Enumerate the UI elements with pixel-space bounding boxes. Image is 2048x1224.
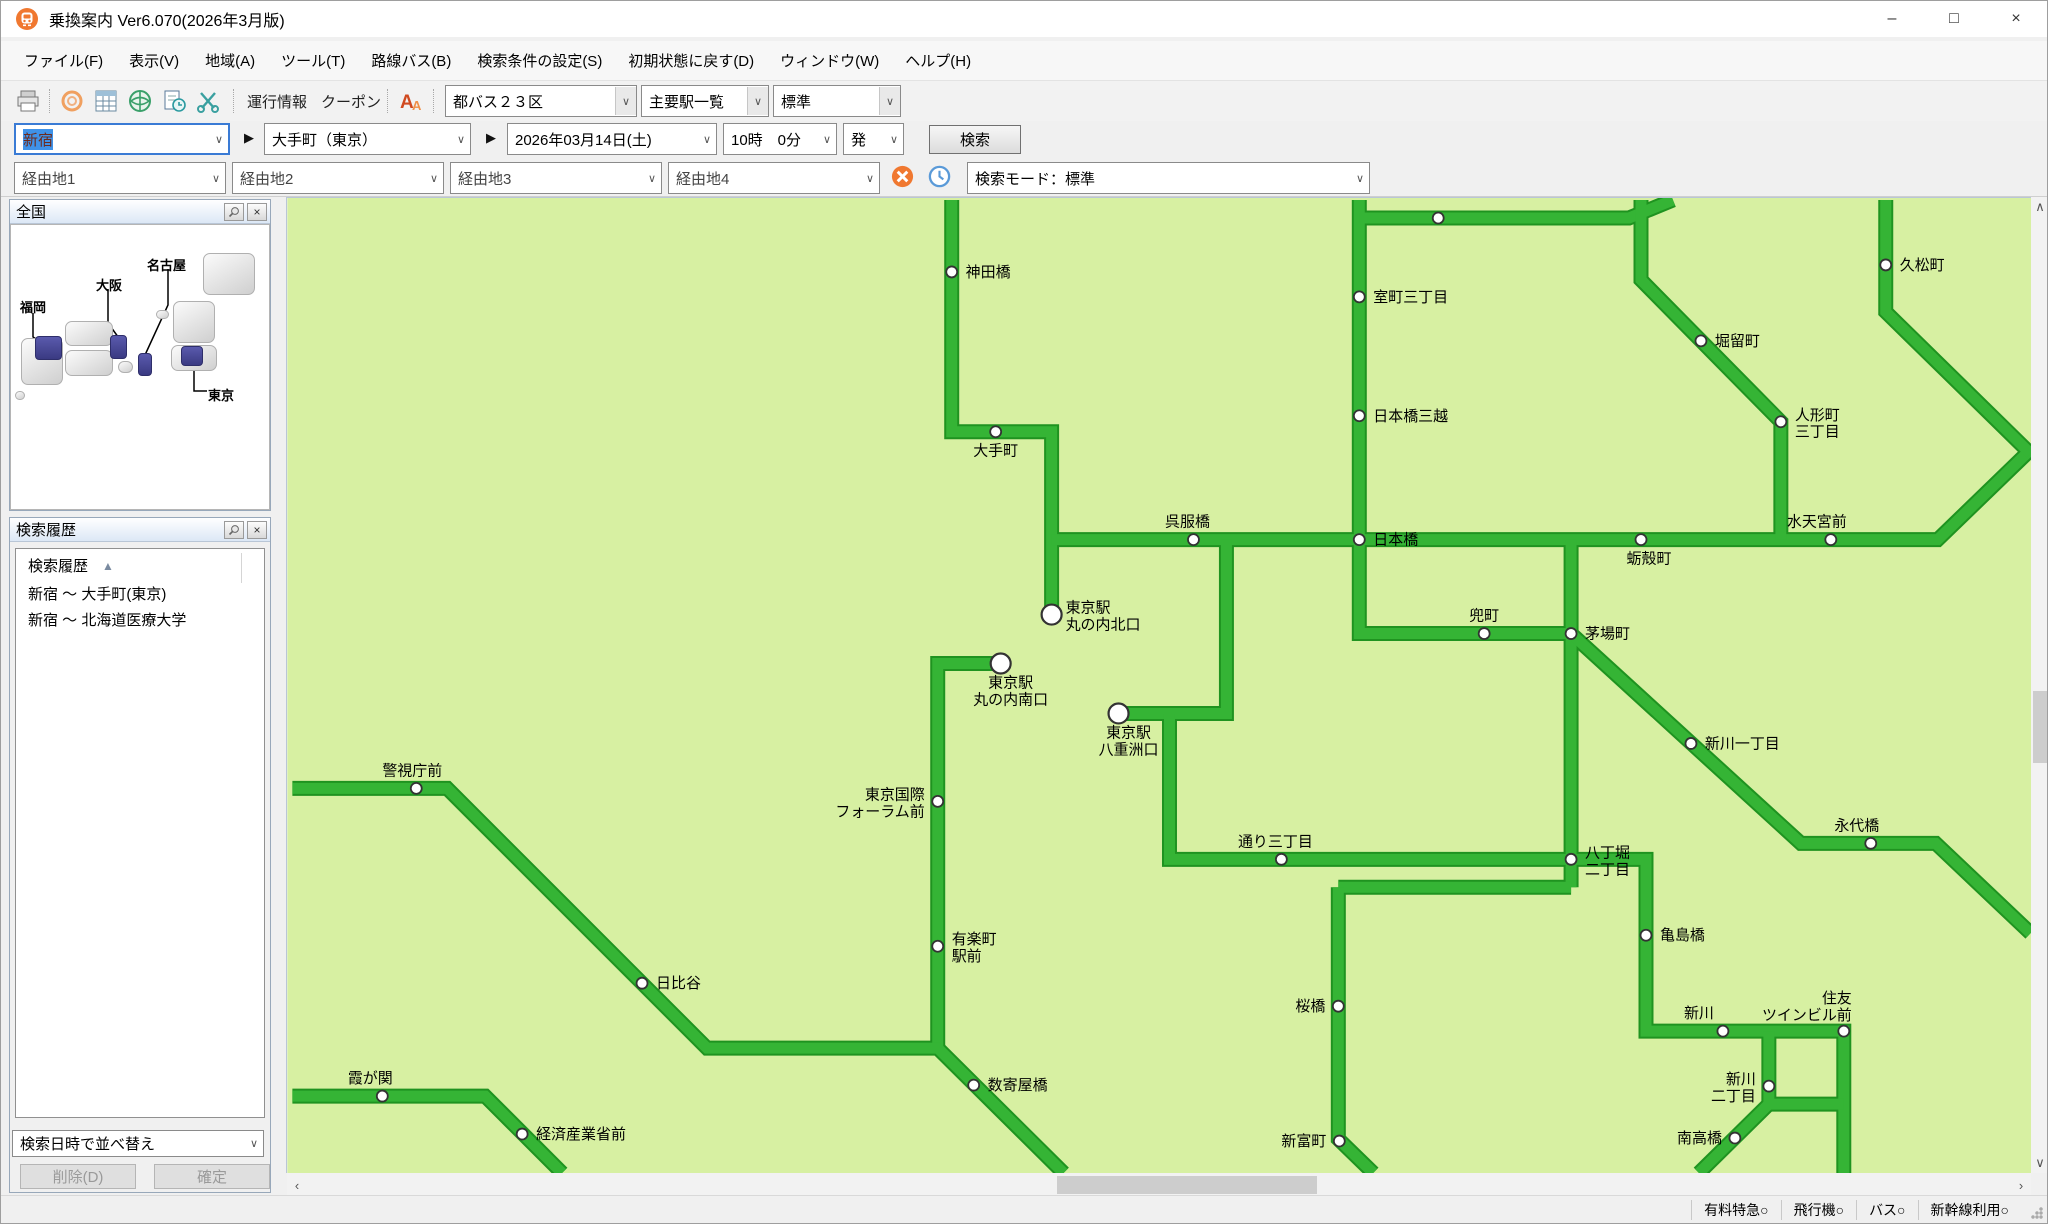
departure-station-input[interactable]: 新宿 ∨ (14, 123, 230, 155)
station-label-12: 丸の内北口 (1066, 617, 1141, 634)
station-dot-27[interactable] (1838, 1026, 1849, 1037)
close-icon[interactable]: × (247, 203, 267, 221)
station-dot-28[interactable] (1717, 1026, 1728, 1037)
station-dot-29[interactable] (377, 1091, 388, 1102)
scissors-icon[interactable] (195, 88, 221, 114)
station-label-10: 日本橋 (1373, 532, 1418, 549)
history-column-label: 検索履歴 (28, 555, 88, 576)
station-label-24: 日比谷 (656, 975, 701, 992)
menu-item-1[interactable]: 表示(V) (116, 44, 192, 77)
clear-via-icon[interactable] (890, 164, 915, 189)
via-placeholder: 経由地2 (240, 168, 293, 189)
station-label-32: 経済産業省前 (536, 1126, 626, 1143)
scroll-left-icon[interactable]: ‹ (287, 1173, 307, 1197)
station-label-16: 東京駅 (1106, 724, 1151, 741)
station-label-2: 室町三丁目 (1373, 289, 1448, 306)
history-list[interactable]: 検索履歴 ▲ 新宿 ～ 大手町(東京)新宿 ～ 北海道医療大学 (15, 548, 265, 1118)
status-bar: 有料特急○飛行機○バス○新幹線利用○ (1, 1195, 2047, 1223)
menu-item-5[interactable]: 検索条件の設定(S) (464, 44, 615, 77)
status-item-0[interactable]: 有料特急○ (1691, 1200, 1780, 1220)
station-dot-31[interactable] (1763, 1081, 1774, 1092)
timetable-icon[interactable] (93, 88, 119, 114)
station-dot-1[interactable] (1433, 212, 1444, 223)
chevron-down-icon[interactable]: ∨ (245, 1137, 263, 1150)
minimize-button[interactable]: – (1861, 1, 1923, 37)
chevron-down-icon[interactable]: ∨ (879, 87, 900, 115)
station-label-6: 大手町 (973, 443, 1018, 460)
search-row: 新宿 ∨ ▶ 大手町（東京） ∨ ▶ 2026年03月14日(土) ∨ 10時 … (1, 121, 2047, 159)
station-dot-8[interactable] (1825, 534, 1836, 545)
station-label-0: 神田橋 (966, 264, 1011, 281)
svg-text:A: A (412, 98, 422, 113)
via-field-4[interactable]: 経由地4∨ (668, 162, 880, 194)
station-dot-32[interactable] (517, 1129, 528, 1140)
time-value: 10時 0分 (731, 129, 801, 150)
toolbar-dropdown-value: 標準 (781, 91, 811, 112)
station-label-11: 蛎殻町 (1627, 551, 1672, 568)
via-placeholder: 経由地1 (22, 168, 75, 189)
history-column-header[interactable]: 検索履歴 ▲ (16, 549, 264, 580)
station-label-16: 八重洲口 (1099, 741, 1159, 758)
station-dot-23[interactable] (932, 941, 943, 952)
chevron-down-icon[interactable]: ∨ (818, 133, 836, 146)
station-label-31: 新川 (1726, 1071, 1756, 1088)
station-label-22: 八丁堀 (1585, 844, 1630, 861)
toolbar-separator (433, 89, 434, 113)
resize-grip[interactable] (2031, 1207, 2043, 1219)
station-label-28: 新川 (1684, 1005, 1714, 1022)
station-dot-16[interactable] (1109, 703, 1129, 723)
menu-item-6[interactable]: 初期状態に戻す(D) (615, 44, 767, 77)
station-label-9: 呉服橋 (1165, 514, 1210, 531)
menu-item-7[interactable]: ウィンドウ(W) (767, 44, 892, 77)
depart-arrive-select[interactable]: 発 ∨ (843, 123, 904, 155)
station-dot-33[interactable] (1729, 1133, 1740, 1144)
minimap-region-block[interactable] (118, 361, 133, 373)
history-title-text: 検索履歴 (16, 519, 76, 540)
station-label-23: 駅前 (952, 948, 982, 965)
menu-item-4[interactable]: 路線バス(B) (358, 44, 464, 77)
station-dot-11[interactable] (1636, 534, 1647, 545)
station-label-4: 堀留町 (1715, 333, 1760, 350)
chevron-down-icon[interactable]: ∨ (1351, 172, 1369, 185)
minimap-city-label-2: 名古屋 (147, 255, 186, 274)
title-bar: 乗換案内 Ver6.070(2026年3月版) – □ × (1, 1, 2047, 37)
station-label-29: 霞が関 (348, 1070, 393, 1087)
station-label-20: 通り三丁目 (1238, 833, 1313, 850)
station-label-22: 二丁目 (1585, 861, 1630, 878)
station-label-30: 数寄屋橋 (988, 1076, 1048, 1094)
app-window: 乗換案内 Ver6.070(2026年3月版) – □ × ファイル(F)表示(… (0, 0, 2048, 1224)
time-select[interactable]: 10時 0分 ∨ (723, 123, 837, 155)
station-label-33: 南高橋 (1677, 1130, 1722, 1147)
search-button[interactable]: 検索 (929, 125, 1021, 154)
pin-icon[interactable] (224, 203, 244, 221)
station-dot-14[interactable] (1566, 628, 1577, 639)
station-label-19: 東京国際 (865, 786, 925, 803)
scroll-down-icon[interactable]: ∨ (2031, 1153, 2048, 1173)
minimap-region-block[interactable] (65, 350, 113, 376)
arrival-station-input[interactable]: 大手町（東京） ∨ (264, 123, 471, 155)
departure-station-value: 新宿 (23, 129, 53, 150)
minimap-region-block[interactable] (65, 321, 113, 346)
station-dot-20[interactable] (1276, 854, 1287, 865)
menu-item-3[interactable]: ツール(T) (268, 44, 358, 77)
minimap-city-label-1: 大阪 (96, 275, 122, 294)
chevron-down-icon[interactable]: ∨ (861, 172, 879, 185)
station-dot-4[interactable] (1695, 335, 1706, 346)
station-dot-12[interactable] (1042, 605, 1062, 625)
toolbar-dropdown-value: 主要駅一覧 (649, 91, 724, 112)
date-select[interactable]: 2026年03月14日(土) ∨ (507, 123, 717, 155)
horizontal-scrollbar[interactable]: ‹ › (287, 1173, 2031, 1197)
history-row-1[interactable]: 新宿 ～ 北海道医療大学 (16, 606, 264, 632)
minimap-region-block[interactable] (203, 253, 255, 295)
station-dot-22[interactable] (1566, 854, 1577, 865)
chevron-down-icon[interactable]: ∨ (207, 172, 225, 185)
toolbar-dropdown-2[interactable]: 標準∨ (773, 85, 901, 117)
station-dot-25[interactable] (1641, 930, 1652, 941)
toolbar-separator (387, 89, 388, 113)
station-dot-9[interactable] (1188, 534, 1199, 545)
via-field-1[interactable]: 経由地1∨ (14, 162, 226, 194)
schedule-doc-icon[interactable] (161, 88, 187, 114)
sort-ascending-icon: ▲ (102, 559, 114, 573)
station-dot-34[interactable] (1334, 1136, 1345, 1147)
route-map-icon[interactable] (127, 88, 153, 114)
station-label-7: 日本橋三越 (1373, 408, 1448, 425)
station-label-27: ツインビル前 (1762, 1007, 1852, 1024)
menu-item-0[interactable]: ファイル(F) (11, 44, 116, 77)
station-label-3: 久松町 (1900, 257, 1945, 274)
station-dot-3[interactable] (1880, 259, 1891, 270)
station-label-8: 水天宮前 (1787, 514, 1847, 531)
minimap-city-label-0: 福岡 (20, 297, 46, 316)
pin-icon[interactable] (224, 521, 244, 539)
history-row-0[interactable]: 新宿 ～ 大手町(東京) (16, 580, 264, 606)
zenkoku-panel-title: 全国 × (10, 200, 270, 224)
via-row: 経由地1∨経由地2∨経由地3∨経由地4∨ 検索モード：標準 ∨ (1, 159, 2047, 197)
zenkoku-panel: 全国 × 福岡大阪名古屋東京 (9, 199, 271, 511)
history-sort-value: 検索日時で並べ替え (20, 1133, 155, 1154)
search-mode-value: 検索モード：標準 (975, 168, 1095, 189)
station-label-19: フォーラム前 (835, 803, 924, 820)
station-label-13: 兜町 (1469, 607, 1499, 625)
station-label-15: 丸の内南口 (973, 691, 1048, 708)
print-icon[interactable] (15, 88, 41, 114)
station-label-18: 警視庁前 (382, 762, 442, 779)
station-dot-26[interactable] (1333, 1001, 1344, 1012)
chevron-down-icon[interactable]: ∨ (885, 133, 903, 146)
minimap-region-block[interactable] (156, 310, 169, 319)
minimap-city-block-2[interactable] (138, 353, 152, 376)
via-placeholder: 経由地3 (458, 168, 511, 189)
maximize-button[interactable]: □ (1923, 1, 1985, 37)
station-dot-5[interactable] (1775, 416, 1786, 427)
chevron-down-icon[interactable]: ∨ (210, 133, 228, 146)
station-dot-7[interactable] (1354, 410, 1365, 421)
horizontal-scroll-thumb[interactable] (1057, 1176, 1317, 1194)
toolbar-dropdown-value: 都バス２３区 (453, 91, 543, 112)
close-button[interactable]: × (1985, 1, 2047, 37)
column-divider (241, 553, 242, 583)
station-label-14: 茅場町 (1585, 626, 1630, 643)
chevron-down-icon[interactable]: ∨ (615, 87, 636, 115)
history-panel: 検索履歴 × 検索履歴 ▲ 新宿 ～ 大手町(東京)新宿 ～ 北海道医療大学 検… (9, 517, 271, 1193)
status-item-2[interactable]: バス○ (1856, 1200, 1917, 1220)
station-label-26: 桜橋 (1295, 998, 1325, 1015)
scroll-right-icon[interactable]: › (2011, 1173, 2031, 1197)
station-dot-15[interactable] (991, 654, 1011, 674)
station-dot-13[interactable] (1479, 628, 1490, 639)
toolbar-dropdown-0[interactable]: 都バス２３区∨ (445, 85, 637, 117)
station-dot-2[interactable] (1354, 291, 1365, 302)
coupon-link[interactable]: クーポン (321, 91, 381, 112)
station-label-23: 有楽町 (952, 931, 997, 948)
minimap-city-label-3: 東京 (208, 385, 234, 404)
status-item-1[interactable]: 飛行機○ (1781, 1200, 1856, 1220)
delete-button[interactable]: 削除(D) (20, 1164, 136, 1189)
confirm-button[interactable]: 確定 (154, 1164, 270, 1189)
chevron-down-icon[interactable]: ∨ (747, 87, 768, 115)
station-dot-21[interactable] (1865, 838, 1876, 849)
via-field-2[interactable]: 経由地2∨ (232, 162, 444, 194)
chevron-down-icon[interactable]: ∨ (698, 133, 716, 146)
menu-bar: ファイル(F)表示(V)地域(A)ツール(T)路線バス(B)検索条件の設定(S)… (1, 41, 2047, 81)
route-map[interactable]: 神田橋室町三丁目久松町堀留町人形町三丁目大手町日本橋三越水天宮前呉服橋日本橋蛎殻… (286, 197, 2032, 1173)
menu-item-2[interactable]: 地域(A) (192, 44, 268, 77)
station-label-5: 人形町 (1795, 407, 1840, 424)
toolbar-separator (233, 89, 234, 113)
station-dot-17[interactable] (1685, 738, 1696, 749)
via-placeholder: 経由地4 (676, 168, 729, 189)
station-dot-6[interactable] (990, 426, 1001, 437)
history-panel-title: 検索履歴 × (10, 518, 270, 542)
chevron-down-icon[interactable]: ∨ (643, 172, 661, 185)
window-title: 乗換案内 Ver6.070(2026年3月版) (49, 7, 285, 31)
font-size-icon[interactable]: A A (397, 88, 423, 114)
close-icon[interactable]: × (247, 521, 267, 539)
station-label-34: 新富町 (1281, 1132, 1326, 1150)
toolbar: 運行情報 クーポン A A 都バス２３区∨主要駅一覧∨標準∨ (1, 81, 2047, 121)
station-dot-30[interactable] (968, 1080, 979, 1091)
station-label-12: 東京駅 (1066, 600, 1111, 617)
station-dot-10[interactable] (1354, 534, 1365, 545)
history-sort-select[interactable]: 検索日時で並べ替え ∨ (12, 1130, 264, 1157)
arrival-station-value: 大手町（東京） (272, 129, 377, 150)
menu-item-8[interactable]: ヘルプ(H) (892, 44, 984, 77)
timetable-check-icon[interactable] (927, 164, 952, 189)
station-dot-24[interactable] (637, 978, 648, 989)
operation-info-link[interactable]: 運行情報 (247, 91, 307, 112)
zenkoku-minimap[interactable]: 福岡大阪名古屋東京 (10, 224, 270, 510)
minimap-region-block[interactable] (15, 391, 25, 400)
station-dot-0[interactable] (946, 266, 957, 277)
minimap-city-block-3[interactable] (181, 346, 203, 366)
minimap-region-block[interactable] (173, 301, 215, 343)
zenkoku-title-text: 全国 (16, 201, 46, 222)
station-label-15: 東京駅 (988, 674, 1033, 691)
vertical-scrollbar[interactable]: ∧ ∨ (2031, 197, 2048, 1173)
swap-forward-button[interactable]: ▶ (239, 127, 259, 149)
coupon-icon[interactable] (59, 88, 85, 114)
toolbar-separator (49, 89, 50, 113)
depart-arrive-value: 発 (851, 129, 866, 150)
swap-forward-button[interactable]: ▶ (481, 127, 501, 149)
station-label-5: 三丁目 (1795, 424, 1840, 441)
app-logo-icon (15, 7, 39, 31)
station-label-17: 新川一丁目 (1705, 735, 1780, 752)
via-field-3[interactable]: 経由地3∨ (450, 162, 662, 194)
station-label-25: 亀島橋 (1660, 927, 1705, 944)
station-label-31: 二丁目 (1711, 1088, 1756, 1105)
station-dot-18[interactable] (411, 783, 422, 794)
minimap-city-block-1[interactable] (110, 335, 127, 359)
search-mode-select[interactable]: 検索モード：標準 ∨ (967, 162, 1370, 194)
chevron-down-icon[interactable]: ∨ (452, 133, 470, 146)
station-dot-19[interactable] (932, 796, 943, 807)
minimap-city-block-0[interactable] (35, 336, 62, 360)
vertical-scroll-thumb[interactable] (2033, 691, 2047, 763)
date-value: 2026年03月14日(土) (515, 129, 652, 150)
chevron-down-icon[interactable]: ∨ (425, 172, 443, 185)
toolbar-dropdown-1[interactable]: 主要駅一覧∨ (641, 85, 769, 117)
station-label-27: 住友 (1822, 990, 1852, 1007)
station-label-21: 永代橋 (1834, 817, 1879, 834)
scroll-up-icon[interactable]: ∧ (2031, 197, 2048, 217)
status-item-3[interactable]: 新幹線利用○ (1918, 1200, 2021, 1220)
